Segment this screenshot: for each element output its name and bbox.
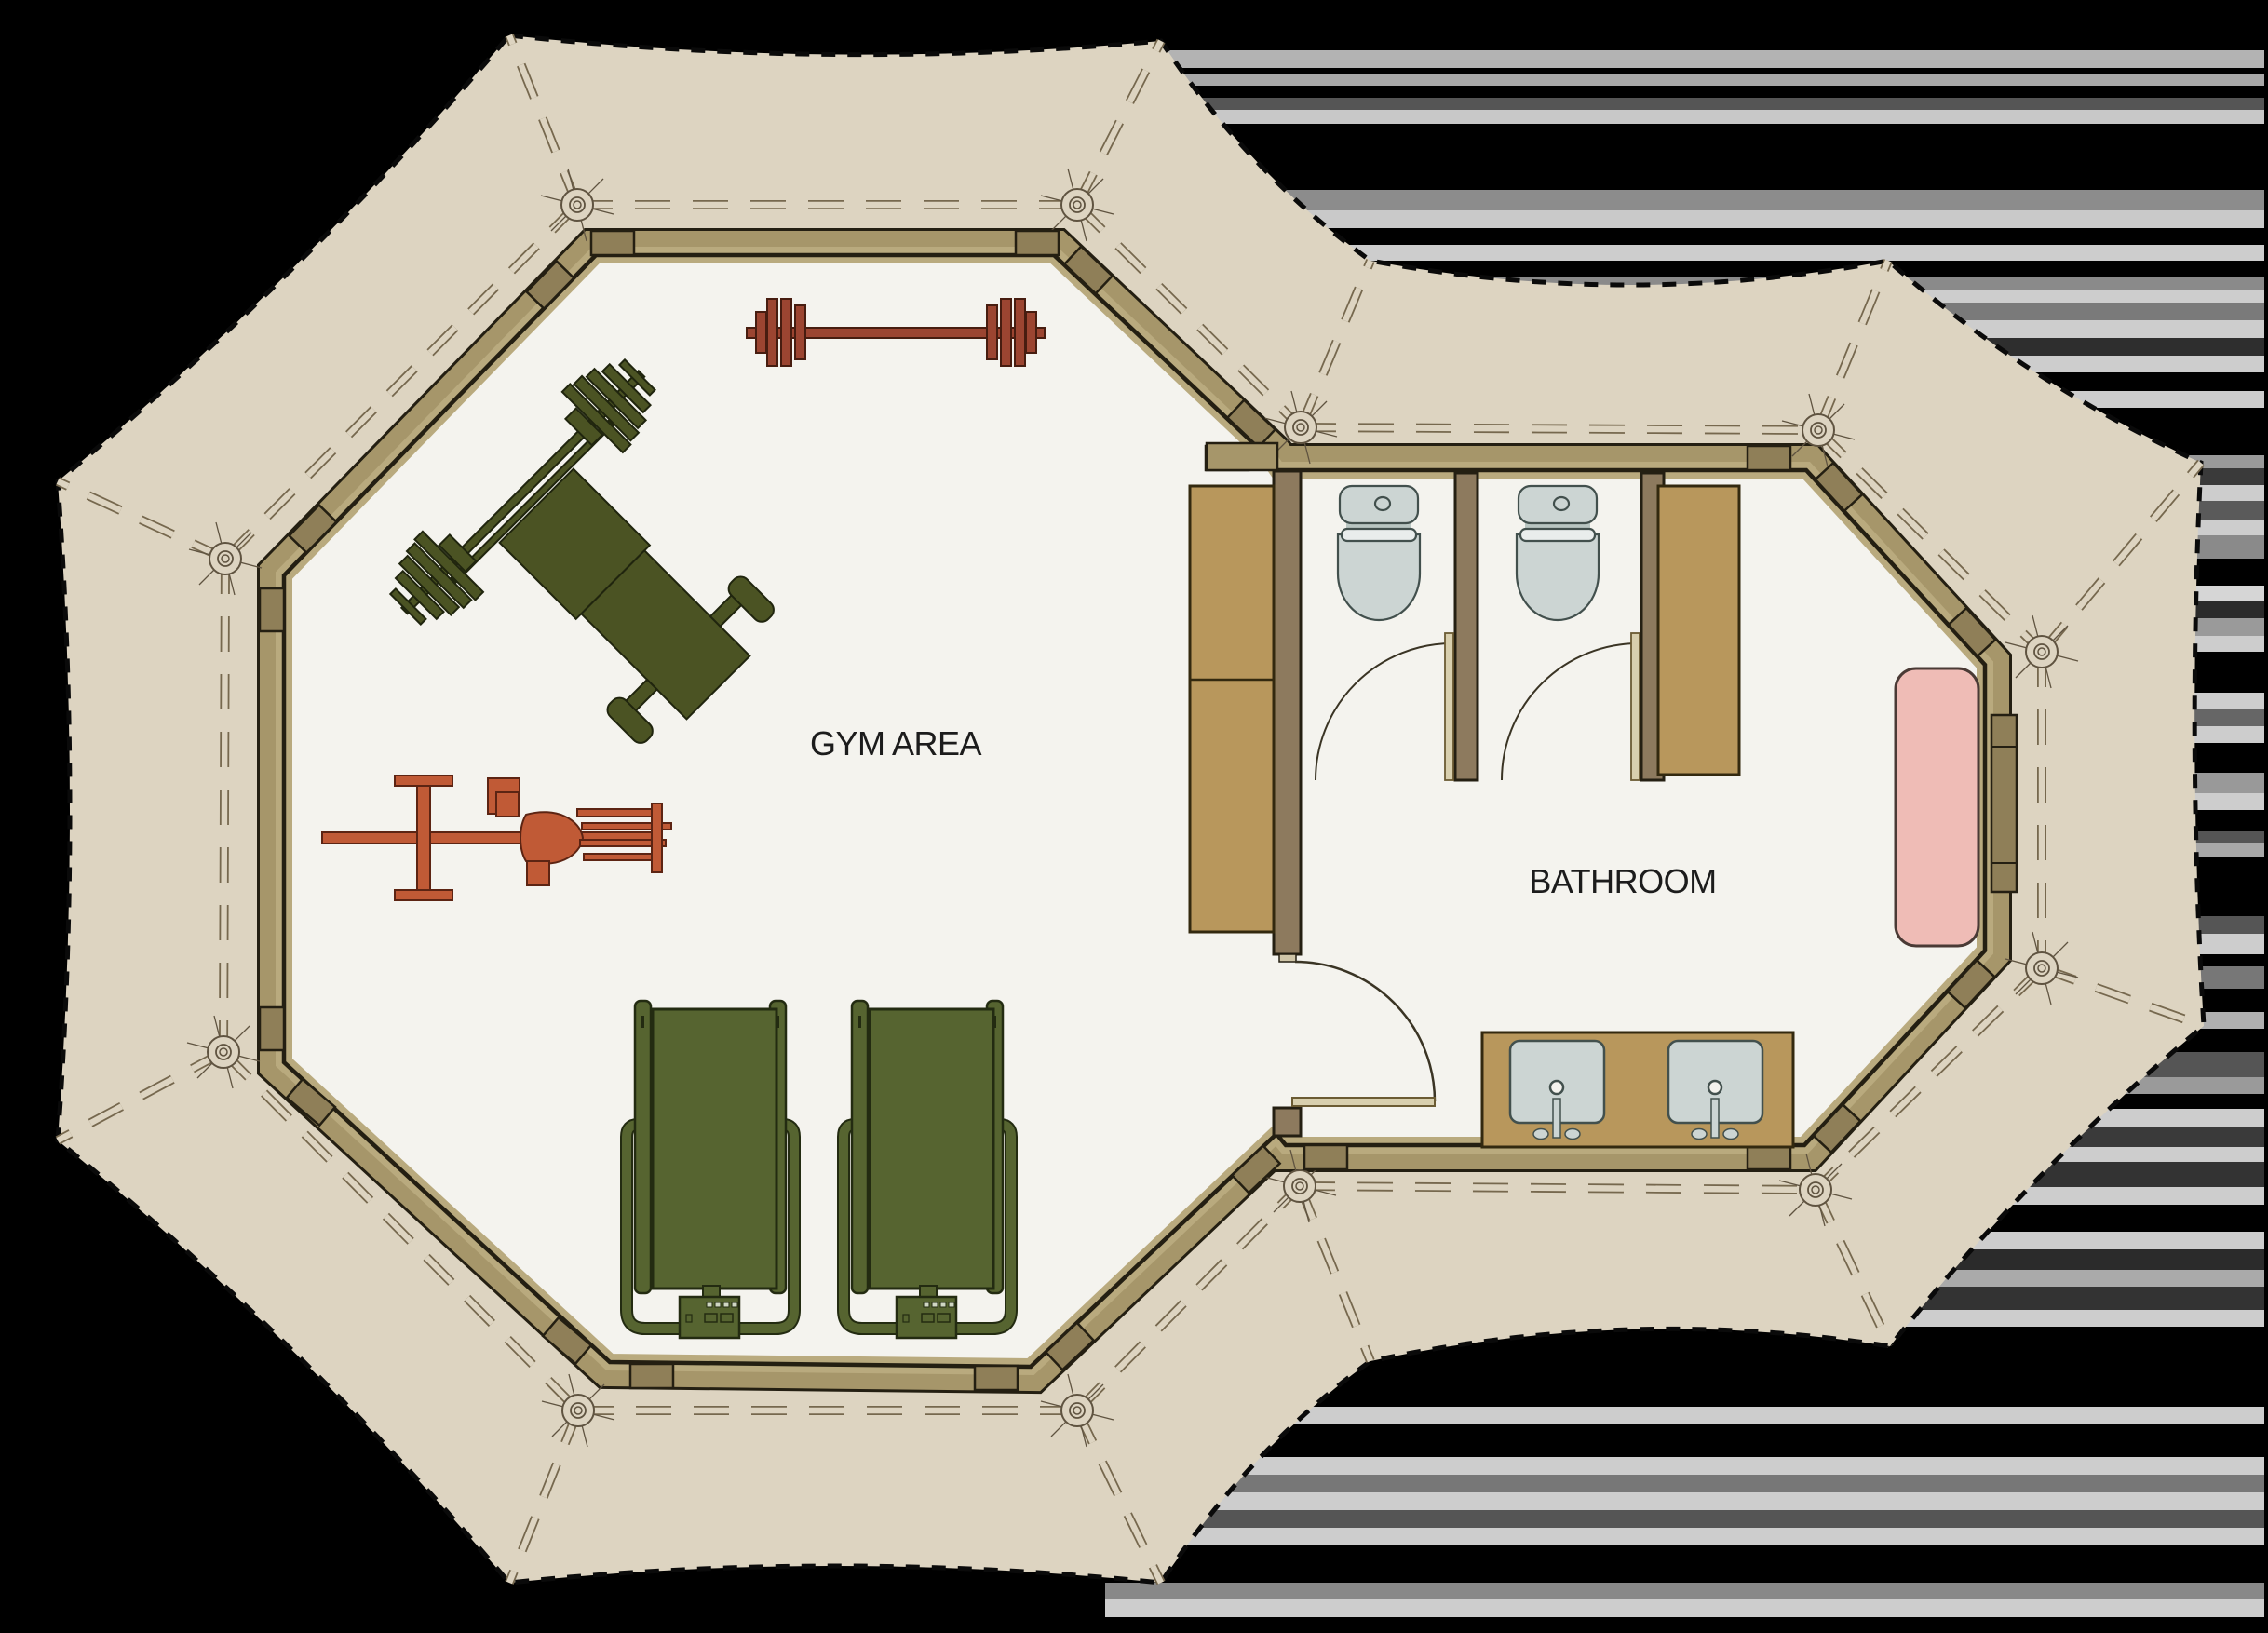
- svg-text:BATHROOM: BATHROOM: [1529, 862, 1716, 900]
- svg-text:GYM AREA: GYM AREA: [810, 724, 982, 763]
